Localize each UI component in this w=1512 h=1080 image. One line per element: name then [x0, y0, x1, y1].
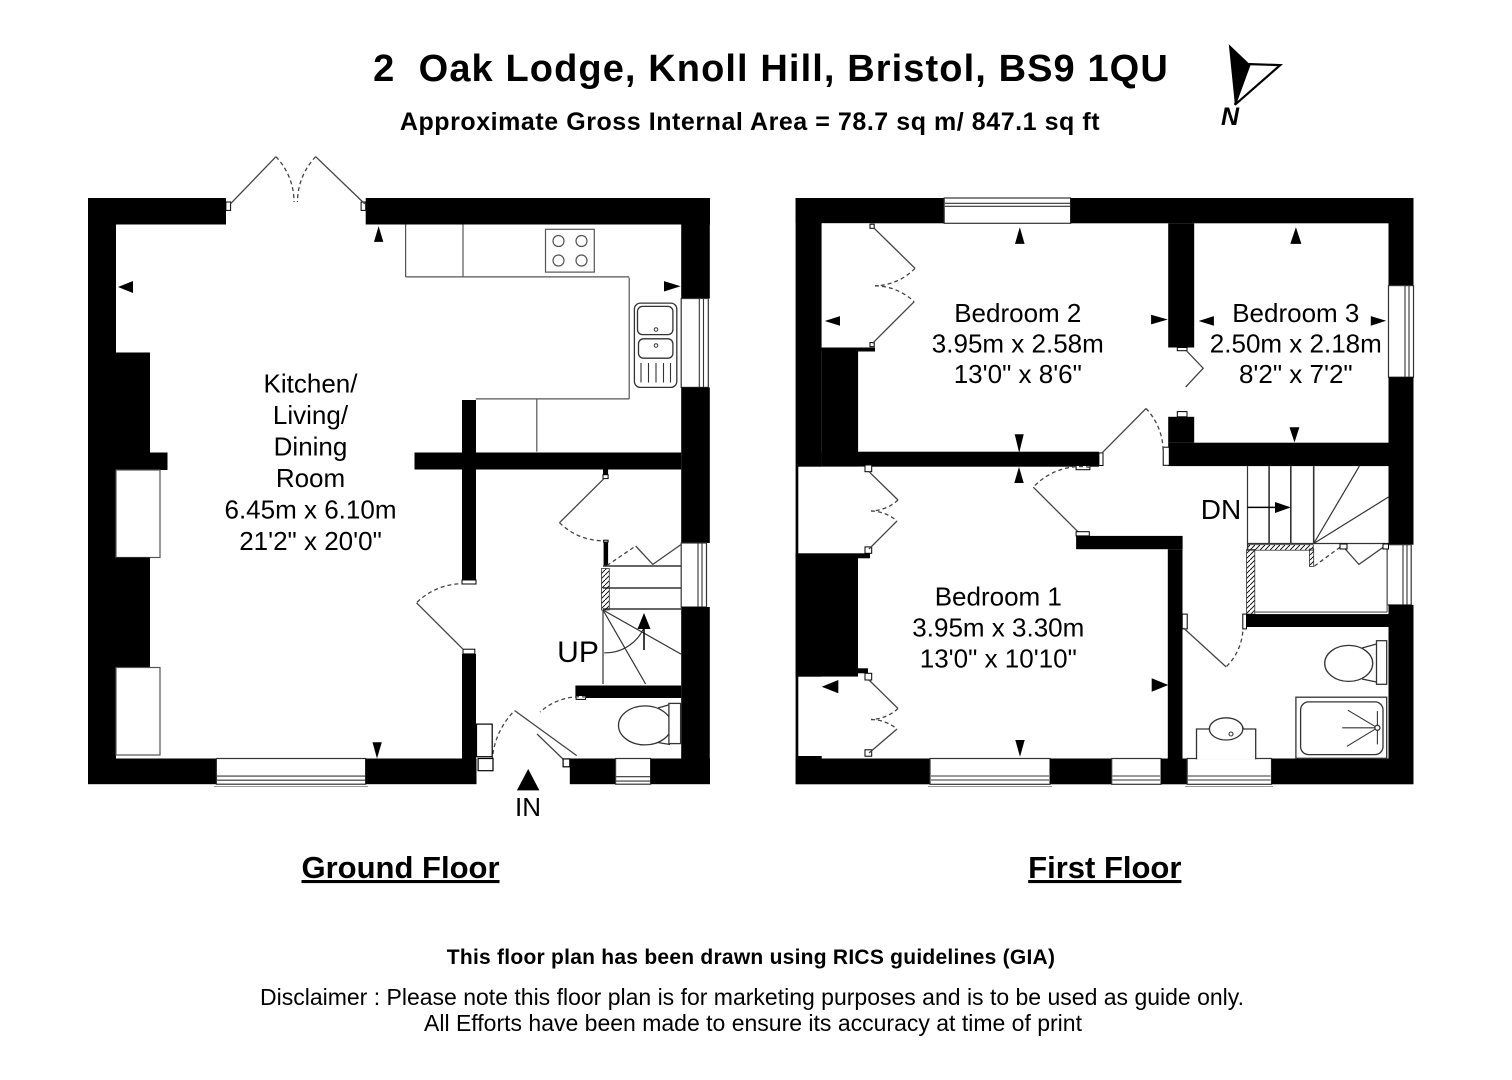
svg-text:UP: UP	[557, 636, 599, 669]
svg-text:2.50m x 2.18m: 2.50m x 2.18m	[1210, 329, 1382, 359]
svg-text:Living/: Living/	[273, 400, 349, 430]
svg-text:N: N	[1221, 103, 1240, 131]
svg-text:Disclaimer : Please note this: Disclaimer : Please note this floor plan…	[260, 984, 1244, 1010]
svg-text:Approximate Gross Internal Are: Approximate Gross Internal Area = 78.7 s…	[400, 108, 1100, 136]
svg-text:21'2" x 20'0": 21'2" x 20'0"	[239, 526, 382, 556]
svg-text:Bedroom 3: Bedroom 3	[1232, 298, 1359, 328]
svg-text:IN: IN	[515, 792, 541, 822]
svg-text:This floor plan has been drawn: This floor plan has been drawn using RIC…	[447, 946, 1055, 969]
svg-text:3.95m x 3.30m: 3.95m x 3.30m	[912, 613, 1084, 643]
svg-text:All Efforts have been made to: All Efforts have been made to ensure its…	[424, 1010, 1083, 1036]
svg-text:Bedroom 1: Bedroom 1	[935, 582, 1062, 612]
svg-text:6.45m x 6.10m: 6.45m x 6.10m	[225, 495, 397, 525]
svg-text:Dining: Dining	[274, 432, 348, 462]
svg-text:3.95m x 2.58m: 3.95m x 2.58m	[932, 329, 1104, 359]
svg-text:8'2" x 7'2": 8'2" x 7'2"	[1239, 359, 1353, 389]
svg-text:Kitchen/: Kitchen/	[264, 369, 359, 399]
svg-text:Bedroom 2: Bedroom 2	[954, 298, 1081, 328]
svg-text:2 Oak Lodge, Knoll Hill, Bris: 2 Oak Lodge, Knoll Hill, Bristol, BS9 1Q…	[373, 48, 1169, 90]
svg-text:Ground Floor: Ground Floor	[301, 850, 499, 885]
svg-text:First Floor: First Floor	[1028, 850, 1181, 885]
svg-text:DN: DN	[1201, 494, 1241, 525]
svg-text:13'0" x 8'6": 13'0" x 8'6"	[954, 359, 1082, 389]
svg-text:13'0" x 10'10": 13'0" x 10'10"	[920, 644, 1077, 674]
svg-text:Room: Room	[276, 463, 345, 493]
